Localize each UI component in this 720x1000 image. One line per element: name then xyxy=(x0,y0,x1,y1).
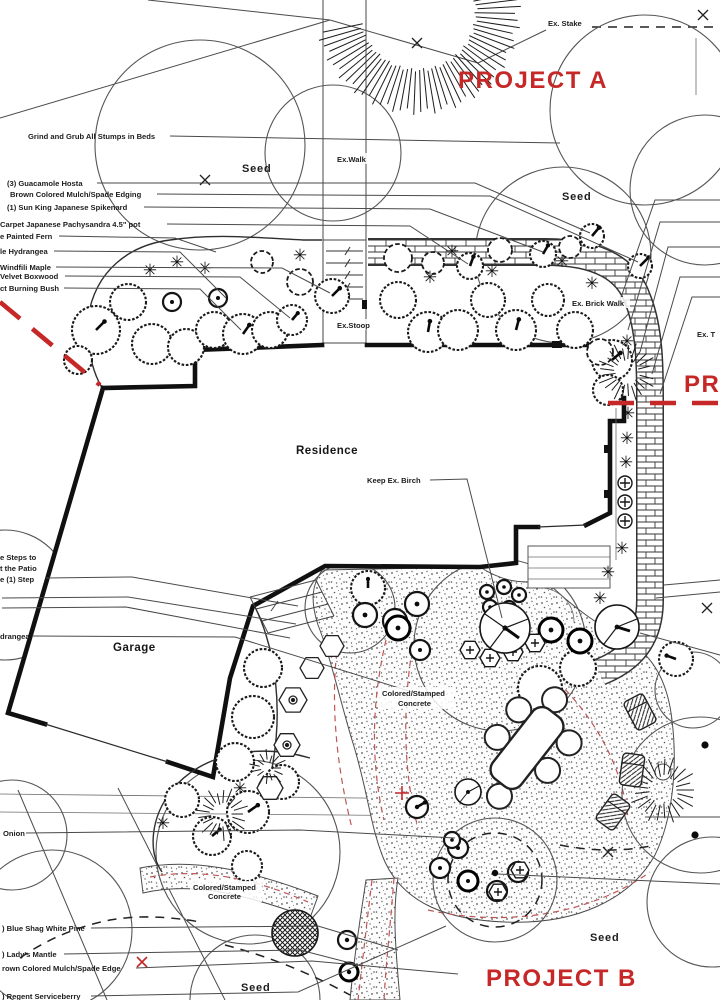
label-the-patio: t the Patio xyxy=(0,564,37,573)
concrete-label-main-1: Colored/Stamped xyxy=(382,689,445,698)
ex-brick-walk-label: Ex. Brick Walk xyxy=(572,299,625,308)
svg-text:✳: ✳ xyxy=(620,332,634,351)
plant-label-burning-bush: ct Burning Bush xyxy=(0,284,59,293)
plant-label-hosta: (3) Guacamole Hosta xyxy=(7,179,83,188)
project-right-title-clipped: PR xyxy=(684,371,720,398)
plant-label-painted-fern: e Painted Fern xyxy=(0,232,53,241)
crosshatch-plant xyxy=(272,910,318,956)
plant-label-white-pine: ) Blue Shag White Pine xyxy=(2,924,85,933)
keep-birch-label: Keep Ex. Birch xyxy=(367,476,421,485)
plant-label-mulch-edge: rown Colored Mulch/Spade Edge xyxy=(2,964,121,973)
svg-text:✳: ✳ xyxy=(293,246,307,265)
seed-label-top-right: Seed xyxy=(562,191,592,203)
ex-stoop-label: Ex.Stoop xyxy=(337,321,370,330)
plant-label-maple: Windfili Maple xyxy=(0,263,51,272)
landscape-plan: ✳✳ ✳✳ ✳✳ ✳✳ ✳✳ ✳✳ ✳✳ ✳✳ ✳✳ xyxy=(0,0,720,1000)
plant-label-hydrangea-2: drangea xyxy=(0,632,30,641)
svg-text:✳: ✳ xyxy=(621,404,635,423)
svg-text:✳: ✳ xyxy=(170,253,184,272)
svg-text:✳: ✳ xyxy=(445,242,459,261)
residence-label: Residence xyxy=(296,445,358,457)
ex-walk-label: Ex.Walk xyxy=(337,155,367,164)
svg-text:✳: ✳ xyxy=(198,259,212,278)
svg-text:✳: ✳ xyxy=(615,539,629,558)
plant-label-mulch-edging: Brown Colored Mulch/Spade Edging xyxy=(10,190,142,199)
svg-text:✳: ✳ xyxy=(156,814,170,833)
concrete-label-main-2: Concrete xyxy=(398,699,431,708)
ex-tree-label-clipped: Ex. T xyxy=(697,330,716,339)
svg-text:✳: ✳ xyxy=(593,589,607,608)
plant-label-pachysandra: Carpet Japanese Pachysandra 4.5" pot xyxy=(0,220,141,229)
plant-label-ladys-mantle: ) Lady's Mantle xyxy=(2,950,57,959)
svg-text:✳: ✳ xyxy=(143,261,157,280)
concrete-label-small-1: Colored/Stamped xyxy=(193,883,256,892)
svg-text:✳: ✳ xyxy=(585,274,599,293)
garage-label: Garage xyxy=(113,642,156,654)
plant-label-boxwood: Velvet Boxwood xyxy=(0,272,59,281)
project-b-title: PROJECT B xyxy=(486,965,637,992)
concrete-path-south xyxy=(350,878,400,1000)
svg-text:✳: ✳ xyxy=(601,563,615,582)
plant-label-spikenard: (1) Sun King Japanese Spikenard xyxy=(7,203,128,212)
svg-text:✳: ✳ xyxy=(233,779,247,798)
plant-list-bottom-labels: Onion ) Blue Shag White Pine ) Lady's Ma… xyxy=(2,829,121,1000)
svg-text:✳: ✳ xyxy=(620,429,634,448)
ex-stake-label: Ex. Stake xyxy=(548,19,582,28)
circle-plus-plants xyxy=(618,476,632,528)
project-a-title: PROJECT A xyxy=(458,67,608,94)
svg-text:✳: ✳ xyxy=(485,262,499,281)
svg-text:✳: ✳ xyxy=(423,268,437,287)
lounge-chair xyxy=(619,753,645,788)
seed-label-bottom-right: Seed xyxy=(590,932,620,944)
plant-label-hydrangea: le Hydrangea xyxy=(0,247,48,256)
label-steps-to: e Steps to xyxy=(0,553,37,562)
plant-label-serviceberry: ) Regent Serviceberry xyxy=(2,992,81,1000)
note-grind-grub: Grind and Grub All Stumps in Beds xyxy=(28,132,155,141)
seed-label-top-left: Seed xyxy=(242,163,272,175)
plant-label-onion: Onion xyxy=(3,829,25,838)
concrete-label-small-2: Concrete xyxy=(208,892,241,901)
label-one-step: e (1) Step xyxy=(0,575,35,584)
seed-label-bottom-center: Seed xyxy=(241,982,271,994)
svg-text:✳: ✳ xyxy=(619,453,633,472)
svg-text:✳: ✳ xyxy=(555,252,569,271)
